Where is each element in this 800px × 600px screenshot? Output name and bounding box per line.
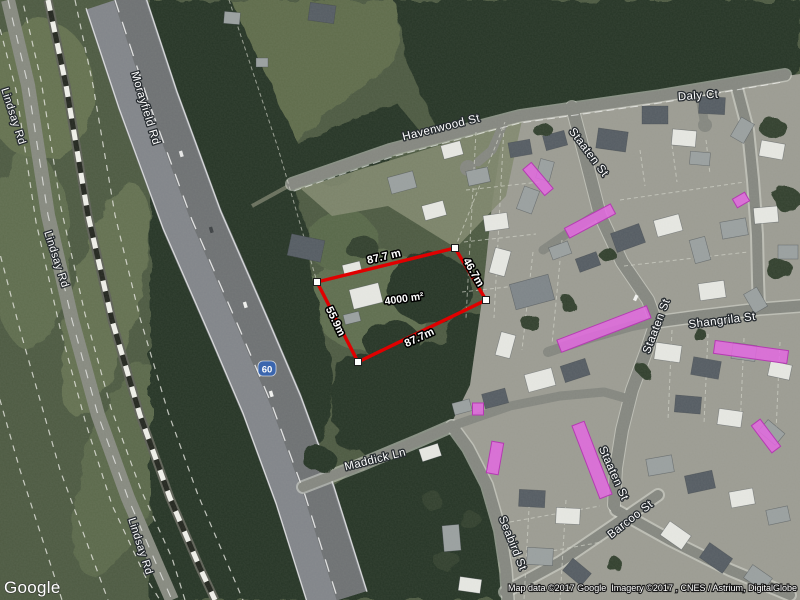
parcel-vertex-handle[interactable]	[483, 297, 490, 304]
parcel-vertex-handle[interactable]	[314, 279, 321, 286]
parcel-vertex-handle[interactable]	[452, 245, 459, 252]
route-shield-number: 60	[262, 365, 273, 376]
attribution-map-data: Map data ©2017 Google	[508, 583, 606, 593]
google-logo[interactable]: Google	[4, 578, 61, 597]
highlighted-parcel[interactable]	[473, 403, 484, 415]
route-shield-60: 60	[258, 361, 276, 376]
satellite-map[interactable]: 87.7 m 46.7m 55.9m 87.7m 4000 m² Morayfi…	[0, 0, 800, 600]
parcel-vertex-handle[interactable]	[355, 359, 362, 366]
attribution-imagery: Imagery ©2017 , CNES / Astrium, DigitalG…	[611, 583, 797, 593]
map-canvas[interactable]: 87.7 m 46.7m 55.9m 87.7m 4000 m² Morayfi…	[0, 0, 800, 600]
